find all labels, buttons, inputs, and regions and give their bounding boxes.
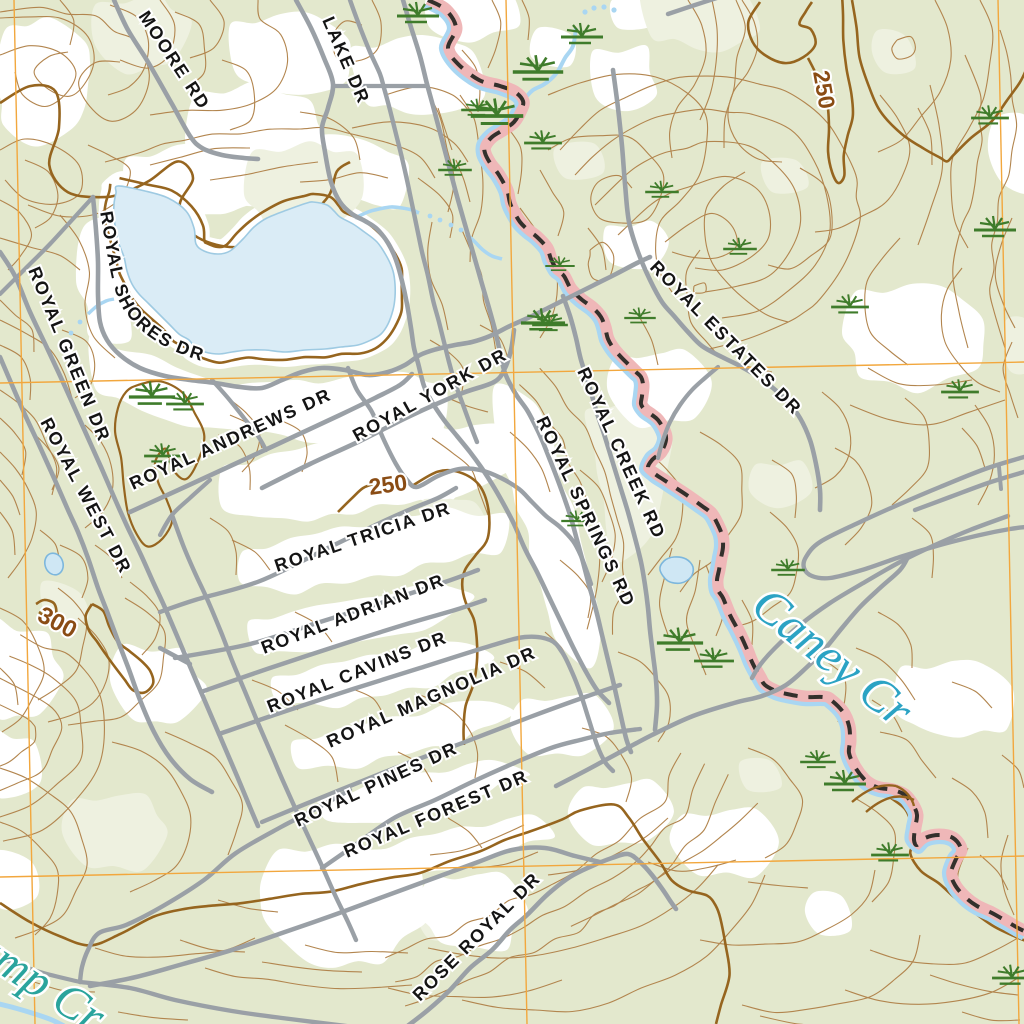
svg-text:250: 250	[367, 469, 409, 500]
